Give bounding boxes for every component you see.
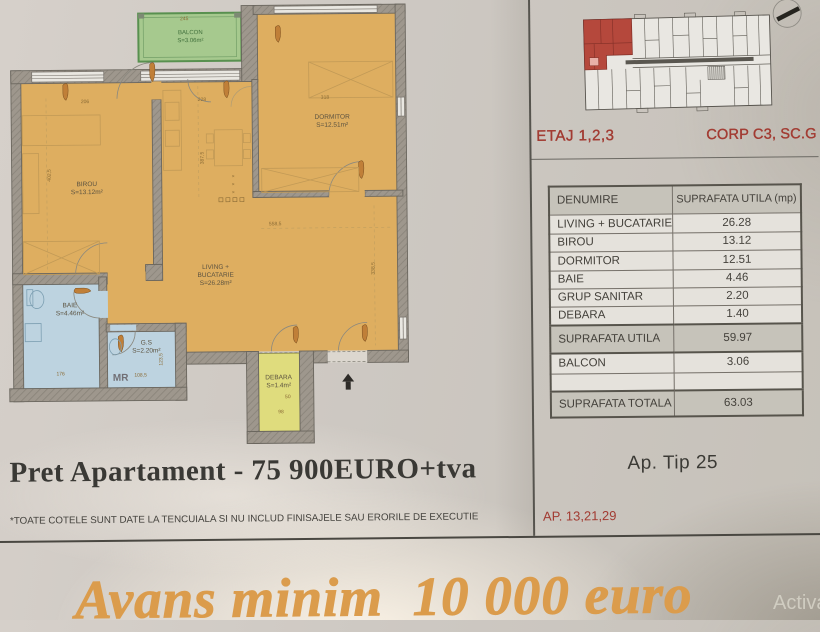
svg-text:BIROU: BIROU (76, 181, 97, 188)
svg-text:MR: MR (113, 373, 129, 384)
svg-text:206: 206 (81, 99, 90, 105)
svg-text:×: × (232, 190, 235, 196)
svg-text:S=3.06m²: S=3.06m² (177, 38, 203, 44)
svg-text:228: 228 (198, 97, 207, 103)
svg-text:DORMITOR: DORMITOR (314, 114, 350, 121)
svg-text:BALCON: BALCON (178, 30, 203, 36)
svg-text:S=12.51m²: S=12.51m² (316, 122, 349, 129)
svg-text:176: 176 (56, 371, 65, 377)
svg-text:S=13.12m²: S=13.12m² (71, 189, 104, 196)
svg-text:S=1.4m²: S=1.4m² (266, 382, 292, 389)
svg-text:245: 245 (180, 16, 189, 22)
svg-text:BUCATARIE: BUCATARIE (198, 272, 235, 279)
svg-text:BAIE: BAIE (63, 302, 79, 309)
svg-text:123,5: 123,5 (158, 353, 164, 366)
svg-text:LIVING +: LIVING + (202, 264, 229, 271)
svg-text:G.S: G.S (141, 339, 153, 346)
svg-text:98: 98 (278, 409, 284, 415)
svg-text:50: 50 (285, 394, 291, 400)
svg-text:338,5: 338,5 (371, 262, 377, 275)
svg-text:108,5: 108,5 (134, 373, 147, 379)
svg-text:558,5: 558,5 (269, 221, 282, 227)
svg-text:S=26.28m²: S=26.28m² (200, 280, 233, 287)
svg-text:DEBARA: DEBARA (265, 374, 292, 381)
svg-text:S=2.20m²: S=2.20m² (132, 347, 161, 354)
svg-text:318: 318 (321, 95, 330, 101)
svg-text:402,5: 402,5 (47, 169, 53, 182)
svg-text:×: × (232, 174, 235, 180)
svg-text:S=4.46m²: S=4.46m² (56, 310, 85, 317)
svg-text:387,5: 387,5 (199, 151, 205, 164)
svg-text:×: × (232, 182, 235, 188)
